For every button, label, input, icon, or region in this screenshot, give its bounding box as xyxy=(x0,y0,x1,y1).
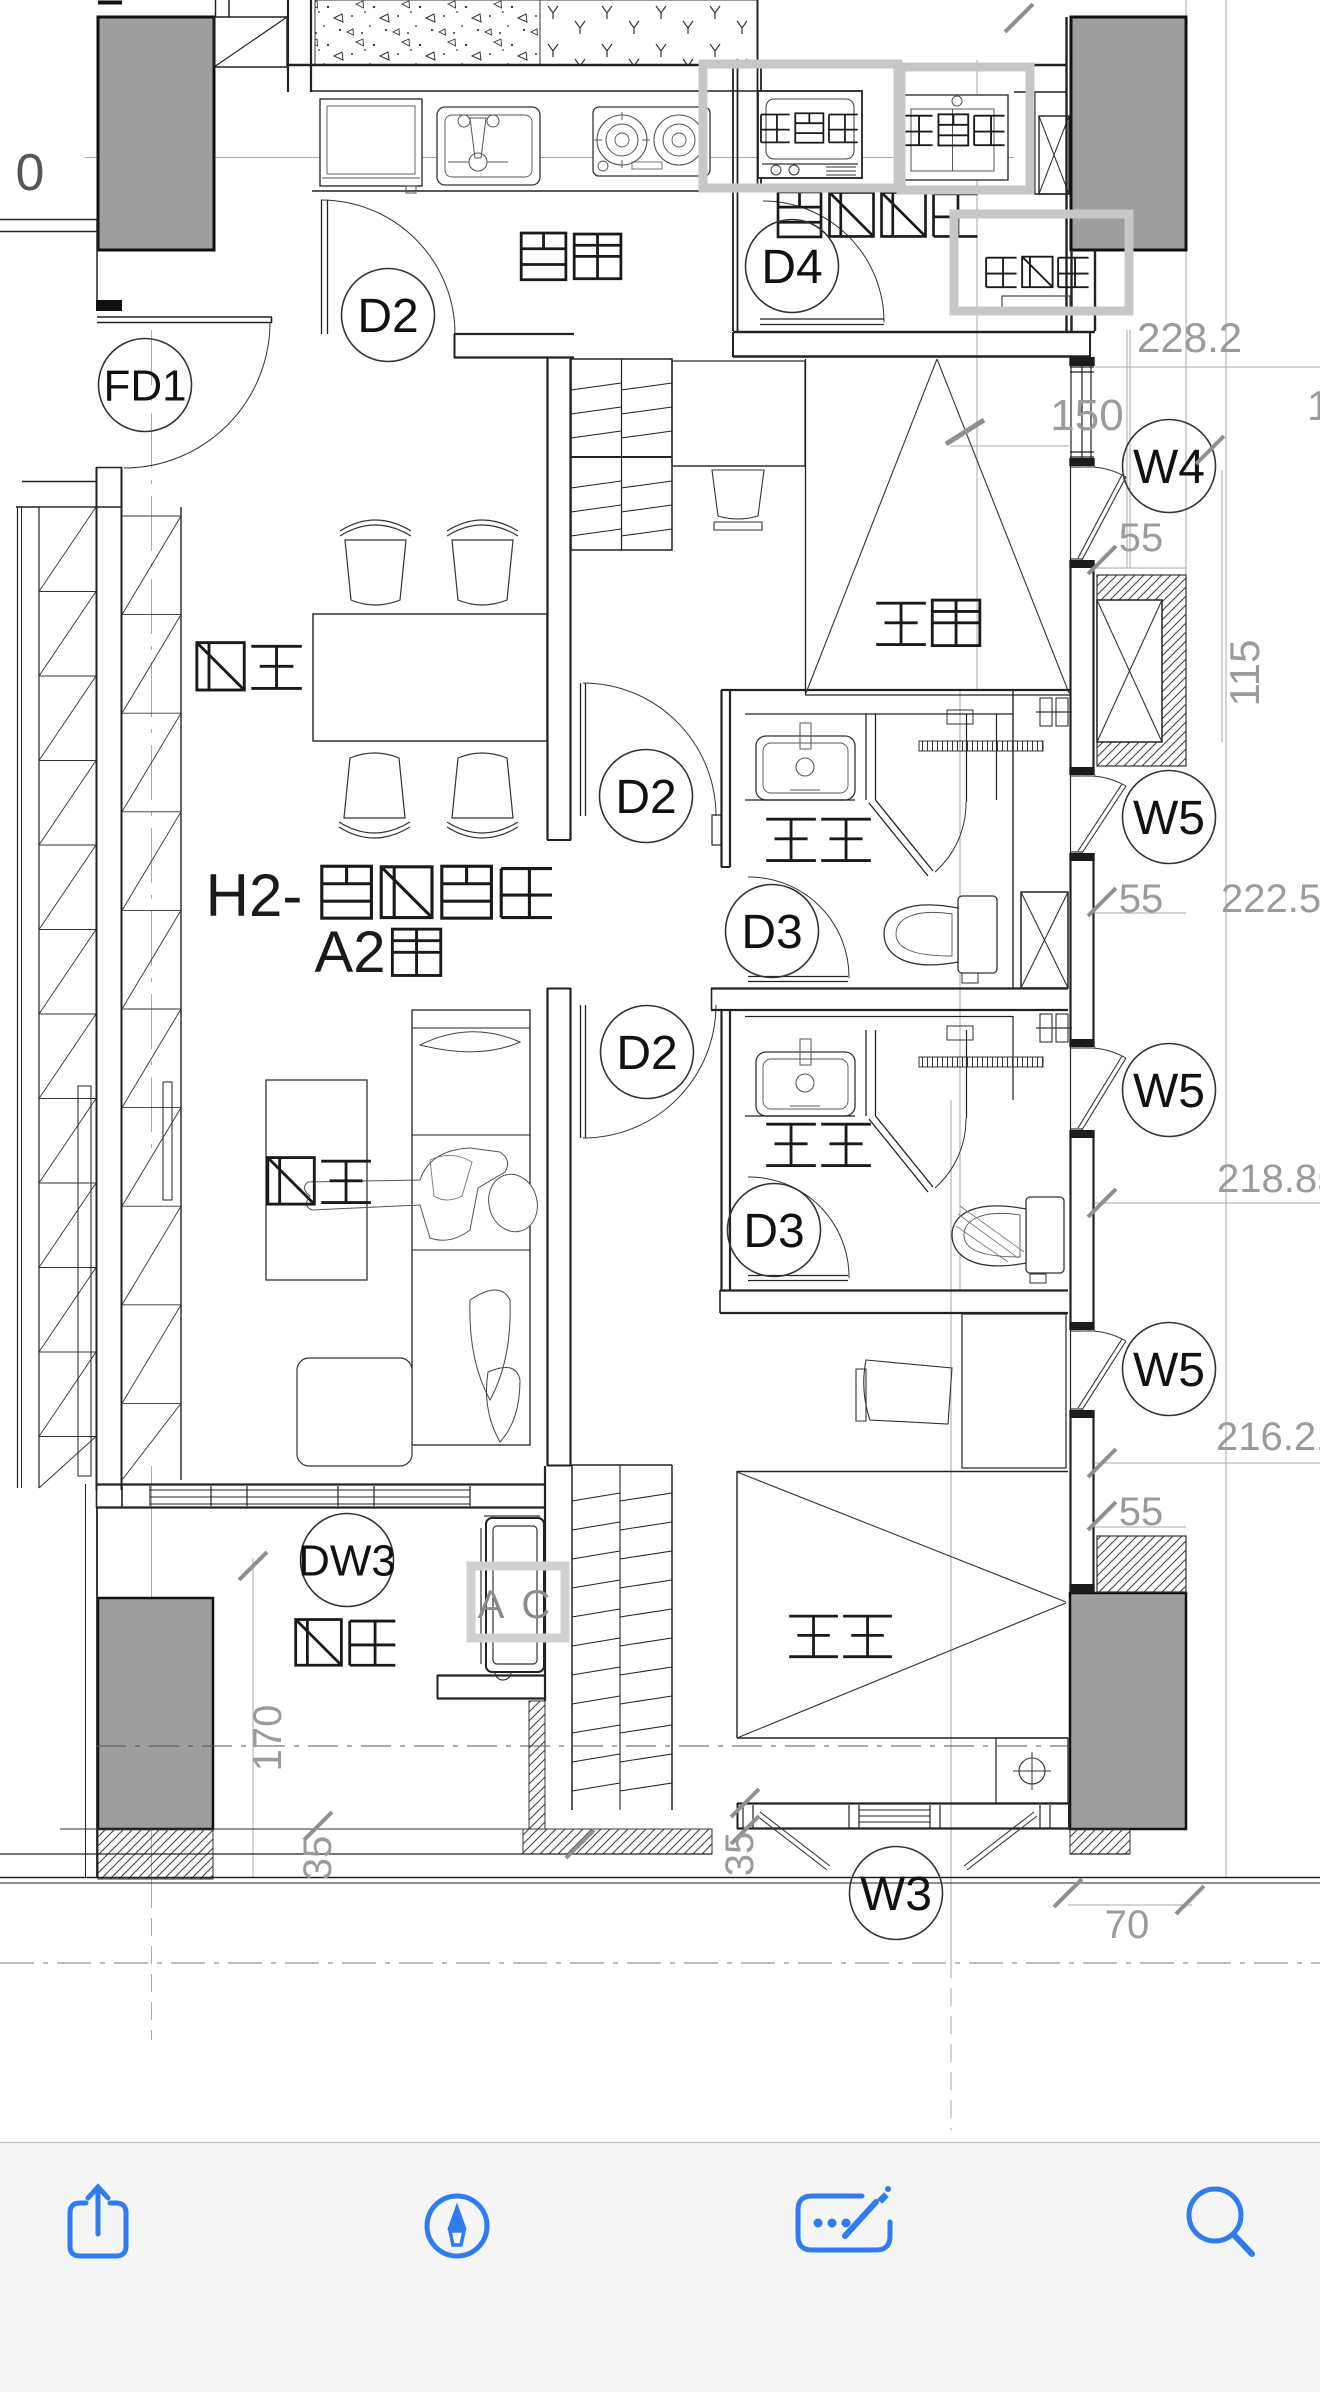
svg-text:55: 55 xyxy=(1119,877,1164,921)
svg-text:216.21: 216.21 xyxy=(1216,1415,1320,1459)
svg-text:218.85: 218.85 xyxy=(1217,1157,1320,1201)
svg-text:0: 0 xyxy=(16,144,45,202)
svg-text:W3: W3 xyxy=(860,1868,932,1921)
svg-text:DW3: DW3 xyxy=(298,1537,396,1586)
svg-text:D3: D3 xyxy=(741,906,802,959)
svg-text:D2: D2 xyxy=(616,1027,677,1080)
svg-text:55: 55 xyxy=(1119,516,1164,560)
svg-text:D4: D4 xyxy=(761,241,822,294)
svg-text:W4: W4 xyxy=(1133,441,1205,494)
svg-text:A C: A C xyxy=(478,1583,554,1627)
svg-text:150: 150 xyxy=(1050,391,1123,440)
svg-text:D2: D2 xyxy=(615,771,676,824)
svg-text:W5: W5 xyxy=(1133,792,1205,845)
svg-text:228.2: 228.2 xyxy=(1137,314,1242,361)
svg-text:D3: D3 xyxy=(743,1205,804,1258)
svg-text:FD1: FD1 xyxy=(103,362,186,411)
svg-text:115: 115 xyxy=(1307,382,1320,429)
svg-text:D2: D2 xyxy=(357,290,418,343)
svg-text:H2-: H2- xyxy=(206,862,303,929)
svg-text:70: 70 xyxy=(1105,1903,1150,1947)
svg-text:115: 115 xyxy=(1221,640,1268,707)
svg-text:35: 35 xyxy=(718,1832,762,1877)
svg-text:222.5: 222.5 xyxy=(1221,877,1320,921)
svg-text:A2: A2 xyxy=(315,920,386,985)
svg-text:35: 35 xyxy=(296,1836,340,1881)
svg-text:W5: W5 xyxy=(1133,1344,1205,1397)
svg-text:170: 170 xyxy=(246,1705,290,1772)
svg-text:W5: W5 xyxy=(1133,1065,1205,1118)
svg-text:55: 55 xyxy=(1119,1490,1164,1534)
